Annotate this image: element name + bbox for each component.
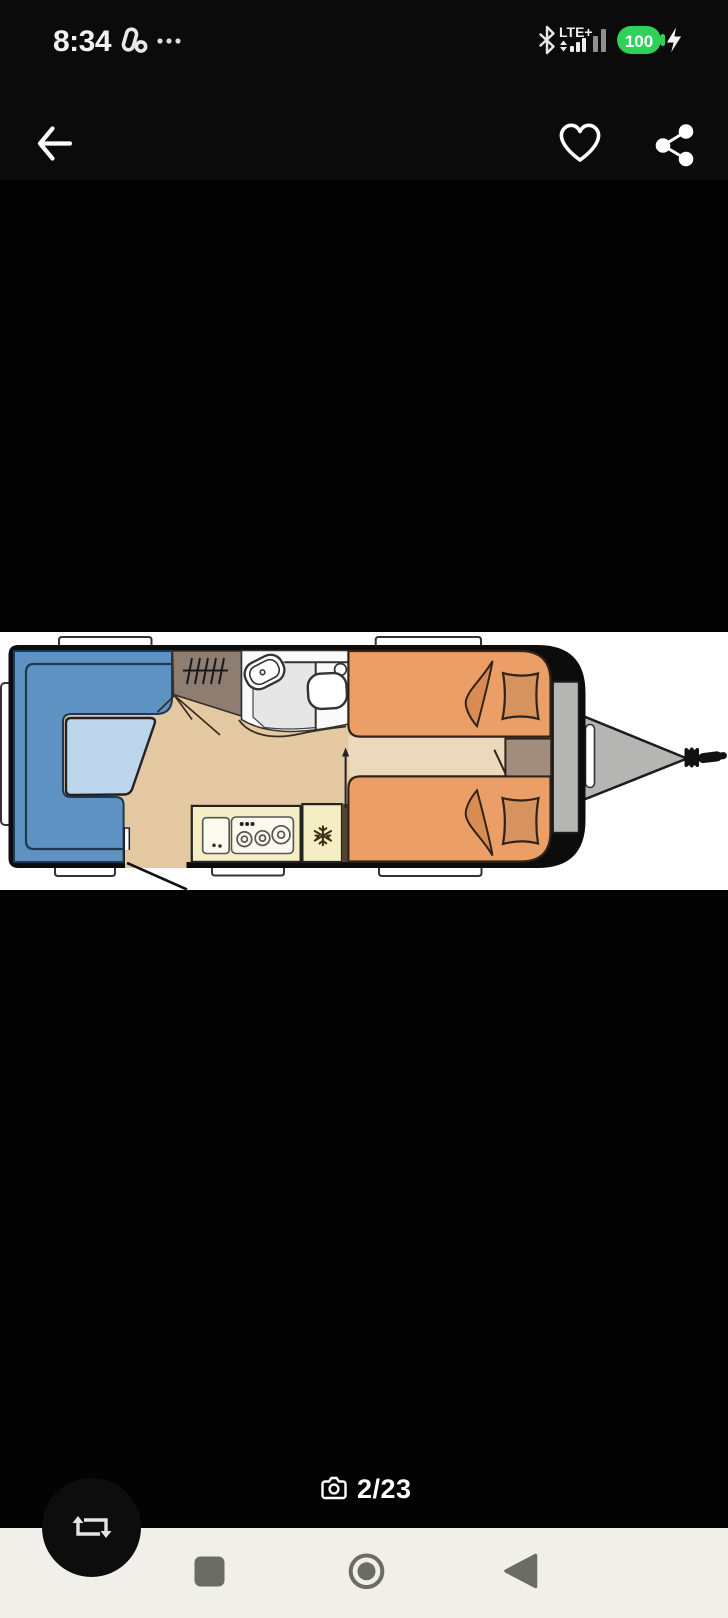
svg-text:100: 100 (625, 32, 653, 51)
svg-text:LTE+: LTE+ (559, 24, 593, 40)
svg-text:8:34: 8:34 (53, 25, 112, 58)
svg-text:2/23: 2/23 (357, 1474, 412, 1504)
